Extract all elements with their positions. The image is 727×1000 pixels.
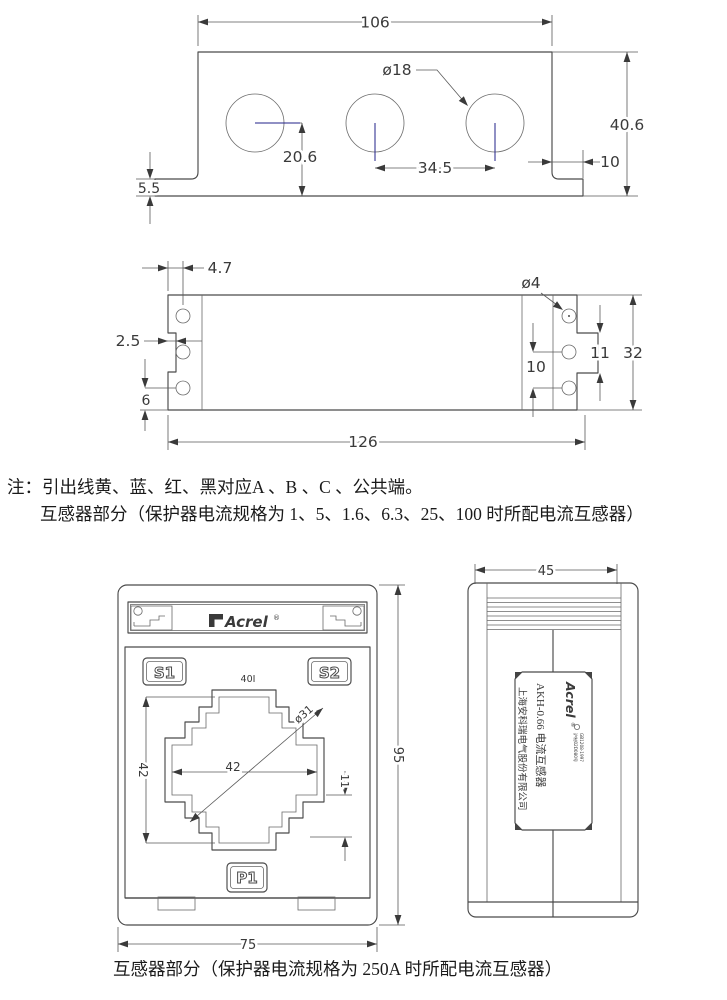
figure3-dim-window-height: 42 — [136, 697, 215, 843]
figure2-dim-hole-pitch: 10 — [526, 323, 562, 417]
figure3-brand-reg: ® — [273, 614, 280, 622]
figure3-dim-body-height-label: 95 — [390, 747, 405, 764]
figure3-foot-right — [298, 897, 335, 910]
figure1-dim-flange-height: 5.5 — [136, 152, 160, 224]
figure2-dim-tab-height: 11 — [590, 305, 610, 401]
figure2-dim-notch-depth: 2.5 — [116, 332, 202, 350]
figure2-dim-notch-depth-label: 2.5 — [116, 332, 141, 350]
figure3-dim-body-height: 95 — [379, 585, 405, 925]
figure1-dim-flange-right: 10 — [528, 150, 620, 178]
figure4-ct-side-view: 45 Acrel ® 沪制02D080号 GB1208-1997 AKH-0.6… — [440, 550, 727, 945]
figure1-dim-width-top: 106 — [198, 14, 552, 47]
figure1-dim-center-to-bottom: 20.6 — [283, 123, 318, 196]
manual-page: 106 ø18 40.6 20.6 34.5 — [0, 0, 727, 1000]
figure2-dim-tab-height-label: 11 — [590, 344, 610, 362]
figure3-ct-front-view: Acrel ® S1 S2 40I 42 — [100, 575, 422, 977]
figure2-dim-width-label: 126 — [348, 433, 378, 451]
figure4-label-cert2: GB1208-1997 — [579, 733, 584, 762]
figure1-dim-center-to-bottom-label: 20.6 — [283, 148, 318, 166]
note-line-2: 互感器部分（保护器电流规格为 1、5、1.6、6.3、25、100 时所配电流互… — [40, 501, 644, 526]
figure3-brand-label: Acrel — [224, 613, 269, 631]
figure2-dim-hole-dia: ø4 — [521, 274, 565, 313]
figure3-terminal-label-s2: S2 — [308, 658, 351, 685]
figure2-dim-width: 126 — [168, 415, 585, 451]
figure1-dim-height: 40.6 — [552, 52, 644, 196]
note-line-1: 注：引出线黄、蓝、红、黑对应A 、B 、C 、公共端。 — [7, 474, 423, 499]
figure1-dim-hole-spacing: 34.5 — [375, 159, 495, 177]
figure1-dim-hole-spacing-label: 34.5 — [418, 159, 453, 177]
figure2-dim-hole-pitch-label: 10 — [526, 358, 546, 376]
figure4-dim-depth: 45 — [475, 564, 617, 584]
figure1-dim-height-label: 40.6 — [610, 116, 645, 134]
figure3-terminal-label-s1: S1 — [143, 658, 186, 685]
figure4-label-product: AKH-0.66 电流互感器 — [534, 683, 548, 788]
figure3-dim-window-dia: ø31 — [188, 703, 325, 825]
figure4-label-cert1: 沪制02D080号 — [572, 733, 579, 762]
figure3-foot-left — [158, 897, 195, 910]
figure4-terminal-ribs — [487, 598, 621, 630]
figure2-dim-height-label: 32 — [623, 344, 643, 362]
svg-text:Acrel ®: Acrel ® — [563, 681, 578, 728]
figure1-body-outline — [155, 52, 583, 196]
figure2-dim-edge-to-hole: 4.7 — [142, 259, 232, 305]
figure3-window-mark: 40I — [241, 674, 256, 685]
figure2-side-view-drawing: 4.7 ø4 2.5 6 10 — [100, 245, 670, 460]
figure4-nameplate: Acrel ® 沪制02D080号 GB1208-1997 AKH-0.66 电… — [515, 672, 592, 830]
acrel-logo-icon — [209, 614, 223, 627]
figure3-terminal-screw-left — [131, 606, 172, 630]
figure2-dim-hole-to-bottom: 6 — [140, 359, 176, 431]
figure2-dim-hole-to-bottom-label: 6 — [142, 393, 151, 409]
figure1-dim-flange-right-label: 10 — [600, 153, 620, 171]
figure1-dim-hole-dia: ø18 — [382, 61, 470, 108]
figure2-dim-height: 32 — [577, 295, 643, 410]
figure3-dim-window-height-label: 42 — [136, 762, 150, 777]
figure3-dim-step-label: 11 — [338, 774, 351, 788]
figure3-terminal-screw-right — [323, 606, 364, 630]
figure1-dim-flange-height-label: 5.5 — [138, 181, 160, 197]
figure2-dim-edge-to-hole-label: 4.7 — [208, 259, 233, 277]
figure1-dim-hole-dia-label: ø18 — [382, 61, 411, 79]
figure4-label-reg: ® — [569, 722, 576, 728]
bottom-caption: 互感器部分（保护器电流规格为 250A 时所配电流互感器） — [113, 956, 562, 981]
figure3-dim-window-width: 42 — [172, 760, 317, 775]
figure1-dim-width-top-label: 106 — [360, 14, 390, 32]
figure3-dim-window-width-label: 42 — [225, 760, 240, 774]
figure2-holes — [176, 309, 576, 395]
figure3-s2-text: S2 — [319, 664, 340, 682]
figure3-dim-body-width: 75 — [118, 927, 377, 953]
figure4-side-lips — [487, 583, 621, 902]
figure4-dim-depth-label: 45 — [538, 564, 555, 579]
figure3-s1-text: S1 — [154, 664, 175, 682]
figure2-dim-hole-dia-label: ø4 — [521, 274, 540, 292]
figure3-p1-text: P1 — [236, 869, 257, 887]
figure3-brand-logo: Acrel ® — [209, 613, 280, 631]
figure3-dim-body-width-label: 75 — [240, 938, 257, 953]
figure4-label-brand: Acrel — [563, 681, 578, 718]
figure3-dim-step: 11 — [310, 771, 352, 861]
figure1-top-view-drawing: 106 ø18 40.6 20.6 34.5 — [130, 0, 700, 236]
figure2-inner-edges — [202, 295, 553, 410]
figure3-terminal-label-p1: P1 — [227, 863, 267, 892]
svg-text:Acrel ®: Acrel ® — [224, 613, 280, 631]
figure4-label-company: 上海安科瑞电气股份有限公司 — [516, 687, 528, 811]
